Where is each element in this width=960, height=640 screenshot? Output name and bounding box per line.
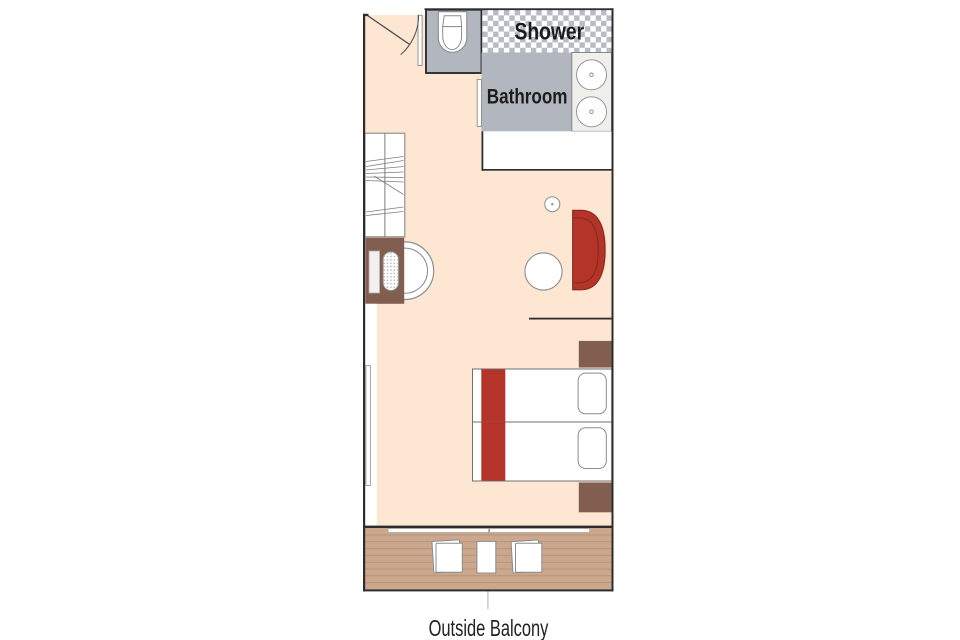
svg-text:Outside Balcony: Outside Balcony [429, 615, 549, 640]
svg-text:Shower: Shower [515, 18, 585, 45]
svg-text:Bathroom: Bathroom [487, 85, 568, 109]
